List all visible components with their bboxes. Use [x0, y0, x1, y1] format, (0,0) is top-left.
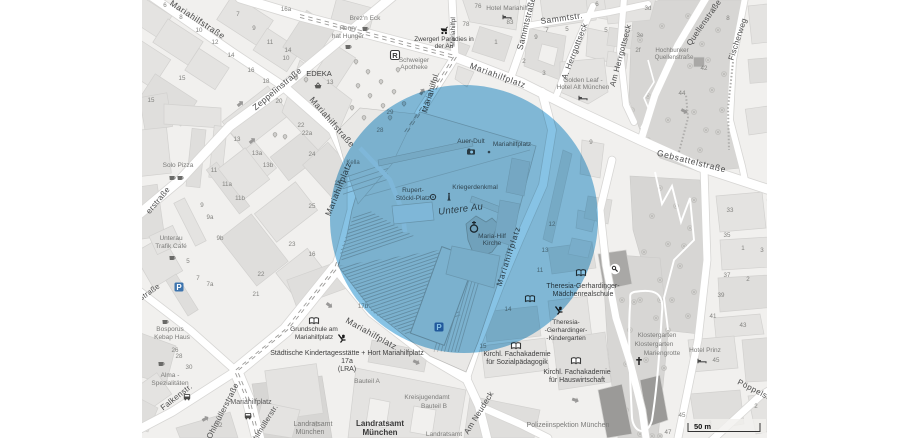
svg-text:7a: 7a	[207, 281, 214, 288]
svg-text:20: 20	[276, 98, 283, 105]
svg-text:25: 25	[309, 203, 316, 210]
svg-text:14: 14	[285, 47, 292, 54]
svg-text:-Kindergarten: -Kindergarten	[546, 335, 586, 342]
svg-text:1: 1	[741, 245, 745, 252]
svg-text:Brez'n Eck: Brez'n Eck	[350, 15, 382, 22]
svg-text:Hotel Alt München: Hotel Alt München	[557, 84, 610, 91]
svg-text:13: 13	[234, 136, 241, 143]
svg-text:Kebap Haus: Kebap Haus	[154, 334, 191, 341]
svg-text:3: 3	[760, 247, 764, 254]
svg-text:9: 9	[534, 34, 538, 41]
svg-text:10: 10	[283, 55, 290, 62]
svg-text:3e: 3e	[637, 32, 644, 39]
svg-text:43: 43	[740, 322, 747, 329]
svg-text:14: 14	[228, 52, 235, 59]
svg-text:13a: 13a	[252, 150, 263, 157]
svg-text:Grundschule am: Grundschule am	[290, 326, 338, 333]
svg-text:Henry: Henry	[339, 25, 357, 32]
svg-text:11b: 11b	[235, 195, 245, 202]
svg-text:Landratsamt: Landratsamt	[426, 431, 462, 438]
svg-text:Hochbunker: Hochbunker	[655, 47, 688, 54]
svg-text:11: 11	[267, 39, 274, 46]
svg-text:hat Hunger: hat Hunger	[332, 33, 365, 40]
svg-text:10: 10	[196, 27, 203, 34]
svg-text:22: 22	[298, 122, 305, 129]
svg-text:8: 8	[726, 15, 730, 22]
svg-text:für Hauswirtschaft: für Hauswirtschaft	[549, 377, 605, 384]
svg-text:18: 18	[263, 78, 270, 85]
svg-text:Spezialitäten: Spezialitäten	[151, 380, 189, 387]
svg-text:12: 12	[212, 39, 219, 46]
svg-text:11: 11	[211, 167, 218, 174]
svg-text:83: 83	[507, 19, 514, 26]
svg-text:41: 41	[710, 313, 717, 320]
svg-text:2f: 2f	[635, 47, 640, 54]
svg-text:Quellenstraße: Quellenstraße	[655, 54, 694, 61]
svg-text:Golden Leaf -: Golden Leaf -	[563, 77, 602, 84]
svg-text:-Gerhardinger-: -Gerhardinger-	[545, 327, 588, 334]
svg-text:6: 6	[595, 1, 599, 8]
svg-text:9: 9	[252, 25, 256, 32]
svg-text:28: 28	[176, 353, 183, 360]
svg-text:5: 5	[604, 27, 608, 34]
svg-text:42: 42	[701, 65, 708, 72]
svg-text:1: 1	[494, 39, 498, 46]
svg-text:Landratsamt: Landratsamt	[356, 419, 404, 428]
svg-text:2: 2	[522, 58, 526, 65]
svg-text:Landratsamt: Landratsamt	[294, 421, 333, 428]
svg-text:Theresia-: Theresia-	[552, 319, 579, 326]
svg-text:15: 15	[148, 97, 155, 104]
svg-text:(LRA): (LRA)	[338, 366, 356, 373]
svg-text:Trafik Café: Trafik Café	[155, 243, 187, 250]
svg-text:23: 23	[289, 241, 296, 248]
svg-text:München: München	[362, 428, 397, 437]
svg-text:2: 2	[754, 403, 758, 410]
svg-text:Klostergarten: Klostergarten	[635, 341, 674, 348]
svg-text:Polizeiinspektion München: Polizeiinspektion München	[527, 422, 610, 429]
svg-text:Bauteil B: Bauteil B	[421, 403, 447, 410]
svg-text:21: 21	[253, 291, 260, 298]
svg-text:9b: 9b	[217, 235, 224, 242]
svg-text:47: 47	[665, 429, 672, 436]
svg-text:22: 22	[258, 271, 265, 278]
svg-text:24: 24	[309, 151, 316, 158]
svg-text:16a: 16a	[281, 6, 292, 13]
svg-text:Solo Pizza: Solo Pizza	[163, 162, 194, 169]
svg-text:Kirchl. Fachakademie: Kirchl. Fachakademie	[543, 369, 610, 376]
svg-text:13: 13	[327, 79, 334, 86]
svg-text:Kirchl. Fachakademie: Kirchl. Fachakademie	[483, 351, 550, 358]
svg-text:Kreisjugendamt: Kreisjugendamt	[404, 394, 449, 401]
svg-text:17a: 17a	[341, 358, 353, 365]
svg-text:Hotel Mariahilf: Hotel Mariahilf	[486, 5, 528, 12]
svg-text:30: 30	[186, 364, 193, 371]
svg-text:50 m: 50 m	[694, 422, 711, 431]
svg-text:3d: 3d	[645, 5, 652, 12]
svg-text:37: 37	[724, 272, 731, 279]
svg-text:Zwergerl Paradies in: Zwergerl Paradies in	[414, 36, 474, 43]
svg-text:Klostergarten: Klostergarten	[638, 332, 677, 339]
svg-text:8: 8	[179, 14, 183, 21]
svg-text:Bauteil A: Bauteil A	[354, 378, 380, 385]
svg-text:15: 15	[179, 75, 186, 82]
svg-text:Mariahilfplatz: Mariahilfplatz	[295, 334, 333, 341]
svg-text:Apotheke: Apotheke	[400, 64, 428, 71]
svg-text:9: 9	[200, 202, 204, 209]
svg-text:Mariengrotte: Mariengrotte	[644, 350, 681, 357]
svg-text:Schweiger: Schweiger	[399, 57, 430, 64]
svg-text:für Sozialpädagogik: für Sozialpädagogik	[486, 359, 548, 366]
svg-text:9: 9	[589, 139, 593, 146]
svg-text:44: 44	[679, 90, 686, 97]
svg-text:Unterau: Unterau	[159, 235, 183, 242]
svg-text:7: 7	[196, 275, 200, 282]
svg-text:45: 45	[679, 412, 686, 419]
svg-text:35: 35	[724, 232, 731, 239]
svg-text:9a: 9a	[207, 214, 214, 221]
svg-text:2: 2	[746, 276, 750, 283]
svg-text:32: 32	[216, 422, 223, 429]
svg-text:Alma -: Alma -	[161, 372, 180, 379]
svg-text:München: München	[296, 429, 325, 436]
svg-text:45: 45	[713, 357, 720, 364]
svg-text:EDEKA: EDEKA	[306, 69, 331, 78]
svg-text:33: 33	[727, 207, 734, 214]
svg-text:3: 3	[542, 70, 546, 77]
svg-text:6: 6	[163, 2, 167, 9]
svg-text:76: 76	[475, 3, 482, 10]
svg-text:der Au: der Au	[435, 43, 454, 50]
svg-text:11a: 11a	[222, 181, 232, 188]
svg-text:16: 16	[309, 251, 316, 258]
svg-text:5: 5	[565, 26, 569, 33]
svg-text:7: 7	[545, 27, 549, 34]
svg-text:Hotel Prinz: Hotel Prinz	[689, 347, 721, 354]
svg-text:Städtische Kindertagesstätte +: Städtische Kindertagesstätte + Hort Mari…	[270, 350, 424, 357]
svg-text:Bosporus: Bosporus	[156, 326, 184, 333]
svg-text:16: 16	[248, 67, 255, 74]
svg-text:13b: 13b	[263, 162, 274, 169]
svg-text:39: 39	[718, 292, 725, 299]
svg-text:6: 6	[710, 7, 714, 14]
svg-text:78: 78	[463, 21, 470, 28]
svg-text:22a: 22a	[302, 130, 313, 137]
svg-text:5: 5	[186, 258, 190, 265]
svg-text:7: 7	[236, 11, 240, 18]
svg-text:Mariahilfplatz: Mariahilfplatz	[230, 399, 272, 406]
